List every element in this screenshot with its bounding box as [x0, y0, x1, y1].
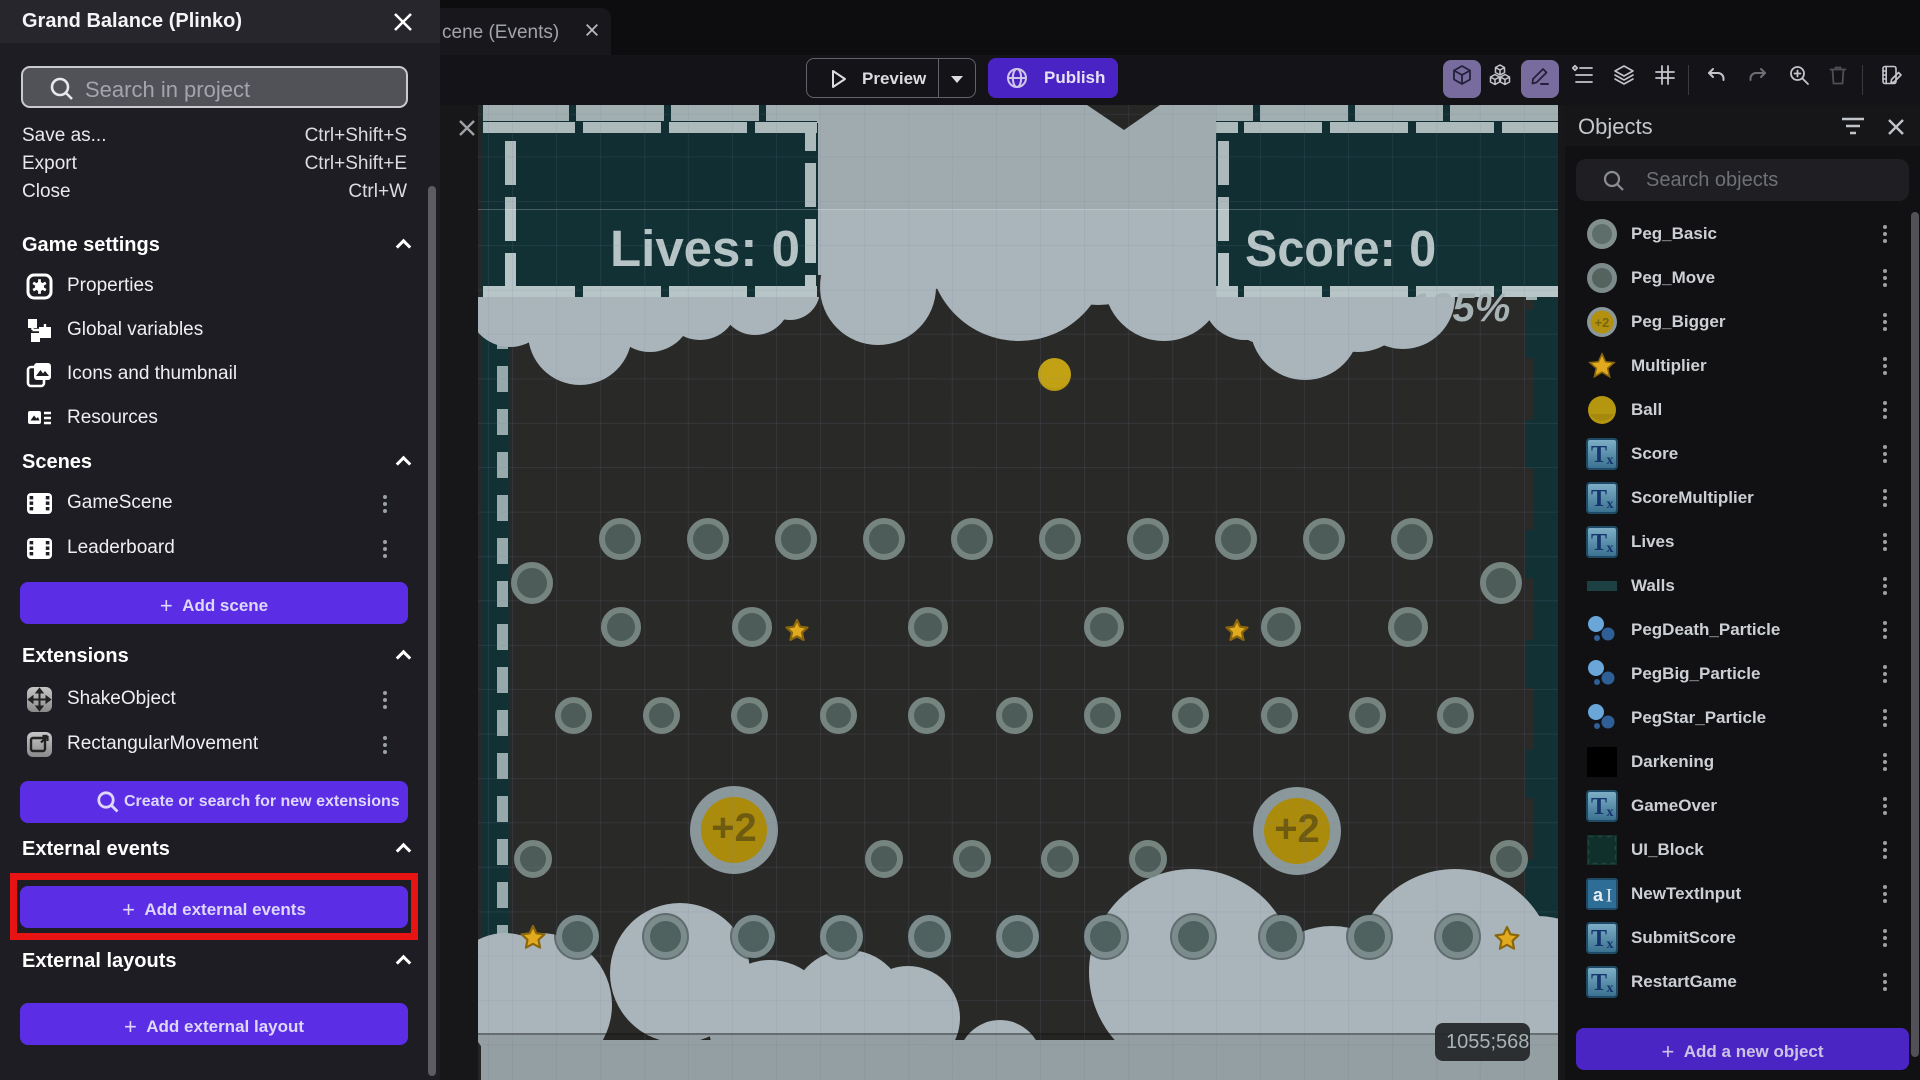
- svg-text:T: T: [1591, 442, 1607, 468]
- svg-text:+2: +2: [1595, 315, 1610, 330]
- svg-text:T: T: [1591, 970, 1607, 996]
- svg-text:T: T: [1591, 794, 1607, 820]
- svg-text:T: T: [1591, 486, 1607, 512]
- svg-text:T: T: [1591, 926, 1607, 952]
- svg-text:x: x: [1607, 497, 1614, 512]
- svg-text:x: x: [1607, 453, 1614, 468]
- svg-text:I: I: [1606, 886, 1612, 907]
- svg-text:x: x: [1607, 541, 1614, 556]
- svg-text:a: a: [1593, 885, 1604, 905]
- svg-text:x: x: [1607, 805, 1614, 820]
- svg-text:x: x: [1607, 937, 1614, 952]
- svg-text:T: T: [1591, 530, 1607, 556]
- svg-text:x: x: [1607, 981, 1614, 996]
